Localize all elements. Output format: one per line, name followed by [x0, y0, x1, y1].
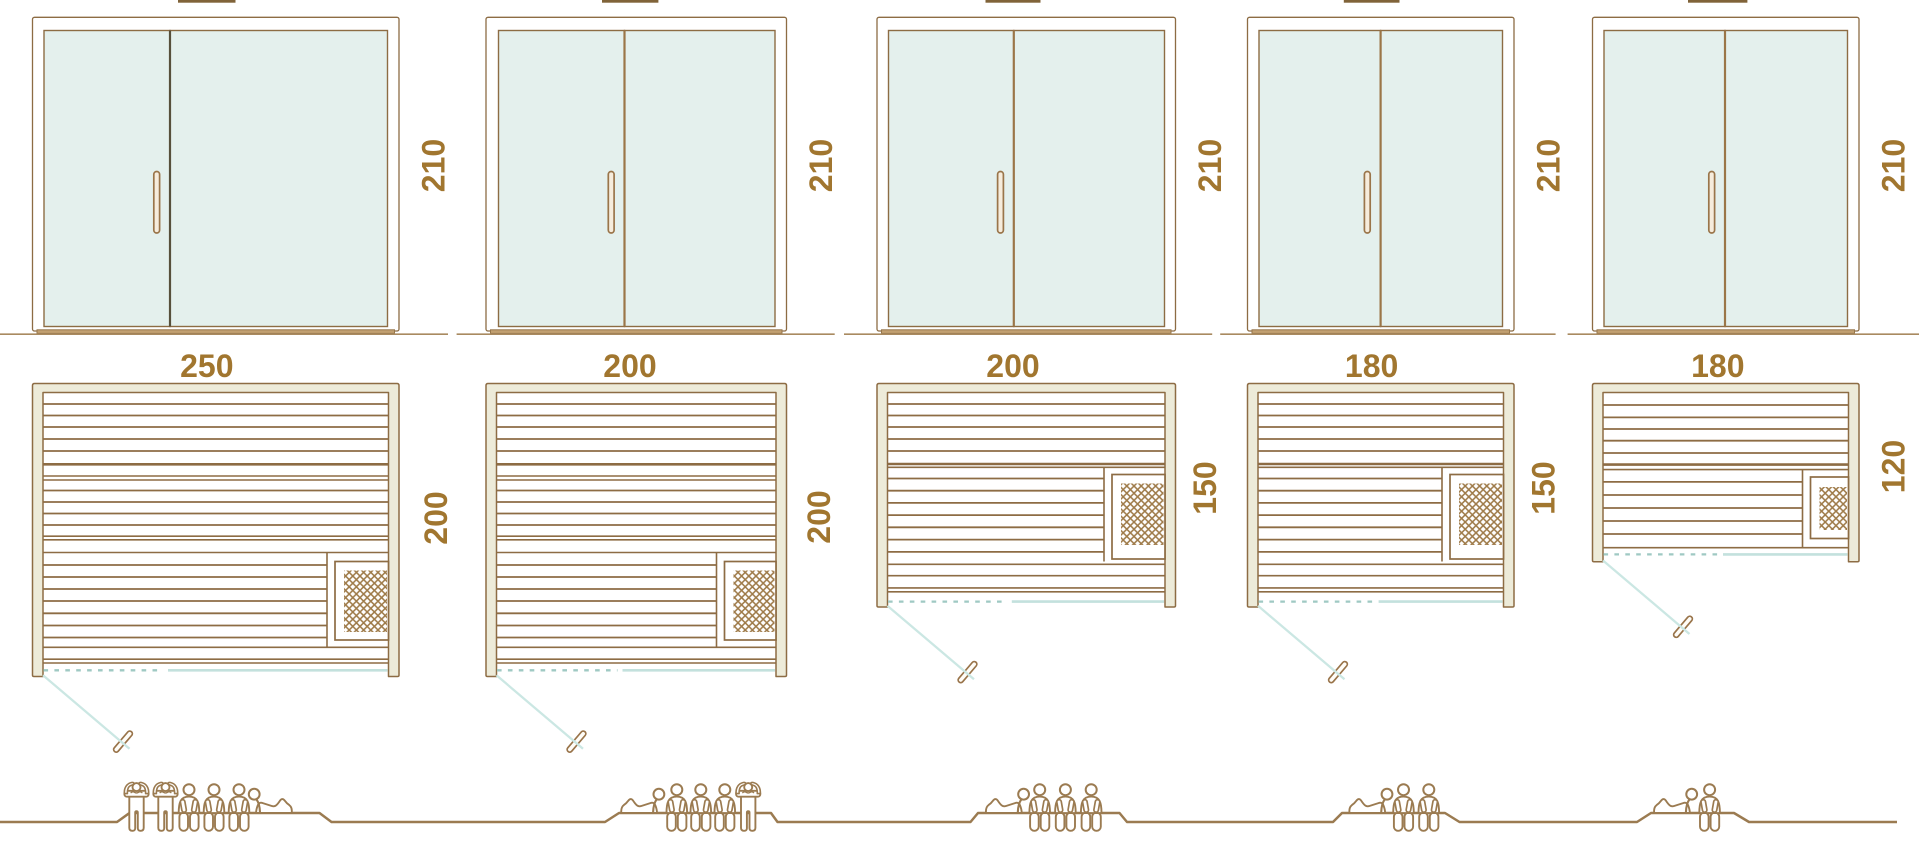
svg-text:200: 200 [603, 348, 656, 384]
svg-text:210: 210 [1531, 139, 1567, 192]
svg-text:210: 210 [1876, 139, 1912, 192]
svg-text:200: 200 [801, 490, 837, 543]
svg-text:120: 120 [1876, 440, 1912, 493]
svg-text:210: 210 [416, 139, 452, 192]
svg-text:250: 250 [180, 348, 233, 384]
svg-text:200: 200 [986, 348, 1039, 384]
svg-text:180: 180 [1691, 348, 1744, 384]
svg-text:200: 200 [418, 491, 454, 544]
svg-text:210: 210 [803, 139, 839, 192]
svg-text:150: 150 [1526, 461, 1562, 514]
svg-text:210: 210 [1192, 139, 1228, 192]
svg-text:180: 180 [1345, 348, 1398, 384]
svg-text:150: 150 [1187, 461, 1223, 514]
